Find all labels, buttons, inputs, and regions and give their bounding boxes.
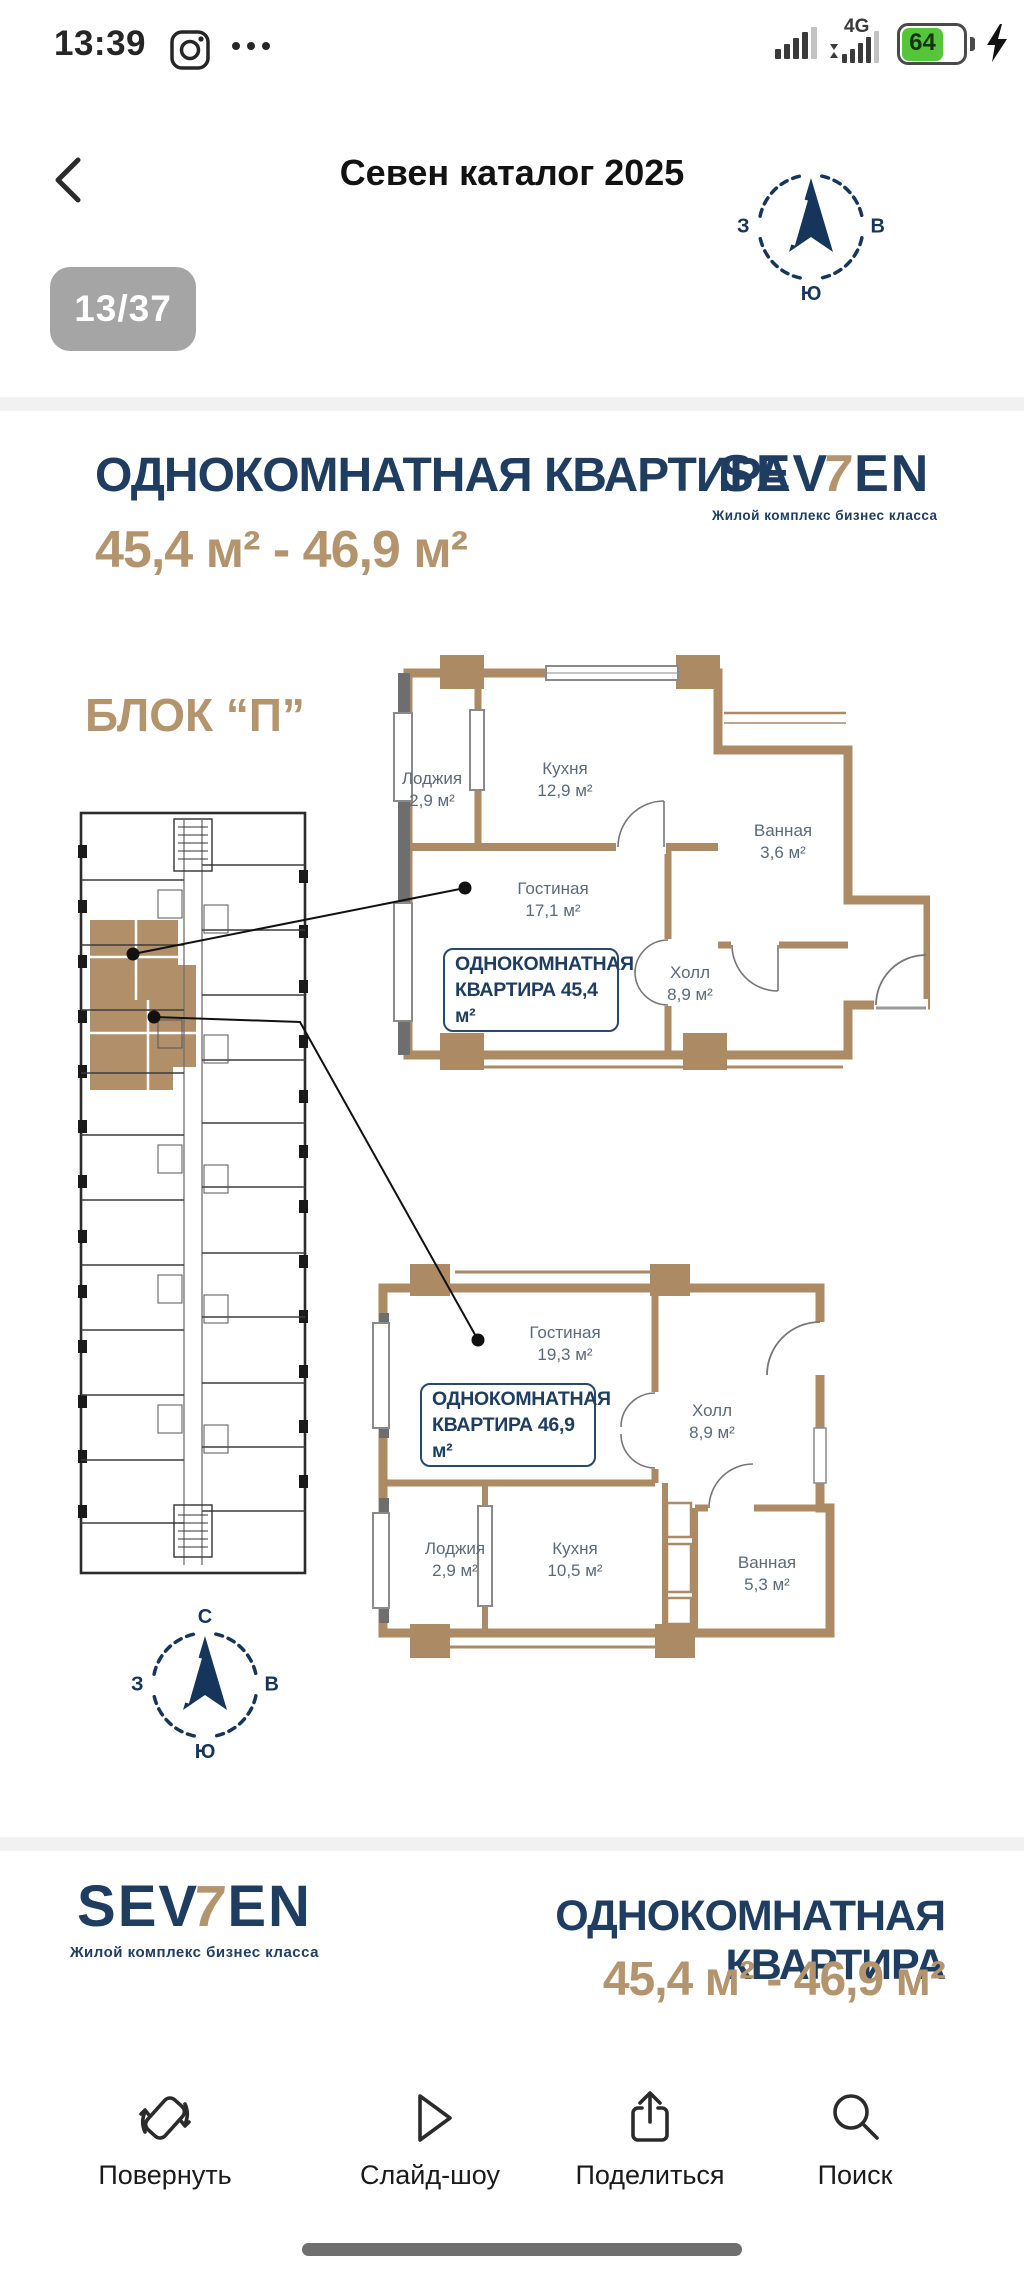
room-label: Кухня 12,9 м²: [505, 758, 625, 802]
toolbar-label: Повернуть: [98, 2160, 231, 2191]
compass-north-label: С: [195, 1606, 215, 1629]
room-label: Гостиная 17,1 м²: [493, 878, 613, 922]
apartment-tag-line1: ОДНОКОМНАТНАЯ: [432, 1386, 584, 1412]
room-area: 19,3 м²: [505, 1344, 625, 1366]
compass-south-label: Ю: [798, 283, 825, 306]
room-label: Лоджия 2,9 м²: [410, 1538, 500, 1582]
room-name: Кухня: [505, 758, 625, 780]
seven-logo-footer: SEV7EN Жилой комплекс бизнес класса: [70, 1878, 319, 1961]
toolbar-search-button[interactable]: Поиск: [750, 2086, 960, 2191]
camera-icon: [168, 28, 212, 72]
room-name: Холл: [652, 1400, 772, 1422]
screen: 13:39 4G 64 Севен каталог 2025 13/37: [0, 0, 1024, 2276]
room-label: Холл 8,9 м²: [652, 1400, 772, 1444]
toolbar-share-button[interactable]: Поделиться: [545, 2086, 755, 2191]
page-gap: [0, 1837, 1024, 1851]
room-name: Гостиная: [505, 1322, 625, 1344]
room-area: 17,1 м²: [493, 900, 613, 922]
compass-rose-bottom: С З В Ю: [130, 1610, 280, 1760]
compass-rose-top: З В Ю: [736, 152, 886, 302]
seven-logo-word: SEV7EN: [77, 1878, 312, 1936]
seven-logo: SEV7EN Жилой комплекс бизнес класса: [712, 448, 938, 523]
room-name: Кухня: [515, 1538, 635, 1560]
status-time: 13:39: [54, 24, 146, 64]
room-area: 2,9 м²: [410, 1560, 500, 1582]
search-icon: [823, 2086, 887, 2150]
room-label: Кухня 10,5 м²: [515, 1538, 635, 1582]
toolbar-label: Слайд-шоу: [360, 2160, 500, 2191]
apartment-tag-line2: КВАРТИРА 45,4 м²: [455, 977, 607, 1030]
apartment-tag-line1: ОДНОКОМНАТНАЯ: [455, 951, 607, 977]
logo-en: EN: [854, 448, 930, 500]
room-label: Холл 8,9 м²: [630, 962, 750, 1006]
toolbar-rotate-button[interactable]: Повернуть: [60, 2086, 270, 2191]
room-area: 8,9 м²: [630, 984, 750, 1006]
room-area: 3,6 м²: [723, 842, 843, 864]
logo-7: 7: [820, 448, 856, 500]
apartment-tag-line2: КВАРТИРА 46,9 м²: [432, 1412, 584, 1465]
room-area: 8,9 м²: [652, 1422, 772, 1444]
apartment-tag-2: ОДНОКОМНАТНАЯ КВАРТИРА 46,9 м²: [420, 1383, 596, 1467]
room-area: 2,9 м²: [387, 790, 477, 812]
footer-area-range: 45,4 м² - 46,9 м²: [380, 1952, 945, 2007]
compass-icon: [130, 1610, 280, 1760]
seven-logo-tagline: Жилой комплекс бизнес класса: [712, 508, 938, 523]
room-name: Гостиная: [493, 878, 613, 900]
charging-icon: [984, 23, 1010, 63]
toolbar-slideshow-button[interactable]: Слайд-шоу: [325, 2086, 535, 2191]
compass-icon: [736, 152, 886, 302]
compass-east-label: В: [868, 216, 888, 239]
compass-south-label: Ю: [192, 1741, 219, 1764]
logo-se: SE: [719, 448, 792, 500]
compass-west-label: З: [734, 216, 753, 239]
page-gap: [0, 397, 1024, 411]
toolbar-label: Поиск: [818, 2160, 893, 2191]
page-indicator-badge: 13/37: [50, 267, 196, 351]
building-plan-drawing: [78, 805, 308, 1580]
room-name: Лоджия: [410, 1538, 500, 1560]
room-label: Ванная 5,3 м²: [707, 1552, 827, 1596]
logo-7: 7: [190, 1878, 230, 1936]
room-area: 10,5 м²: [515, 1560, 635, 1582]
toolbar-label: Поделиться: [575, 2160, 724, 2191]
room-name: Ванная: [723, 820, 843, 842]
signal-4g-icon: 4G: [830, 22, 888, 64]
signal-icon: [775, 25, 821, 61]
room-label: Лоджия 2,9 м²: [387, 768, 477, 812]
page-area-range: 45,4 м² - 46,9 м²: [95, 520, 467, 580]
compass-east-label: В: [262, 1674, 282, 1697]
slideshow-icon: [398, 2086, 462, 2150]
rotate-icon: [133, 2086, 197, 2150]
block-label: БЛОК “П”: [85, 688, 305, 742]
logo-en: EN: [227, 1878, 312, 1936]
battery-icon: 64: [897, 23, 975, 63]
room-name: Ванная: [707, 1552, 827, 1574]
room-name: Лоджия: [387, 768, 477, 790]
compass-west-label: З: [128, 1674, 147, 1697]
room-area: 12,9 м²: [505, 780, 625, 802]
seven-logo-word: SEV7EN: [719, 448, 930, 500]
room-name: Холл: [630, 962, 750, 984]
building-plan: [78, 805, 308, 1580]
apartment-tag-1: ОДНОКОМНАТНАЯ КВАРТИРА 45,4 м²: [443, 948, 619, 1032]
home-indicator[interactable]: [302, 2243, 742, 2256]
seven-logo-tagline: Жилой комплекс бизнес класса: [70, 1944, 319, 1961]
room-area: 5,3 м²: [707, 1574, 827, 1596]
more-dots-icon: [232, 42, 270, 50]
share-icon: [618, 2086, 682, 2150]
room-label: Ванная 3,6 м²: [723, 820, 843, 864]
page-title: ОДНОКОМНАТНАЯ КВАРТИРА: [95, 448, 790, 503]
logo-se: SE: [77, 1878, 158, 1936]
room-label: Гостиная 19,3 м²: [505, 1322, 625, 1366]
status-right-cluster: 4G 64: [775, 22, 1010, 64]
